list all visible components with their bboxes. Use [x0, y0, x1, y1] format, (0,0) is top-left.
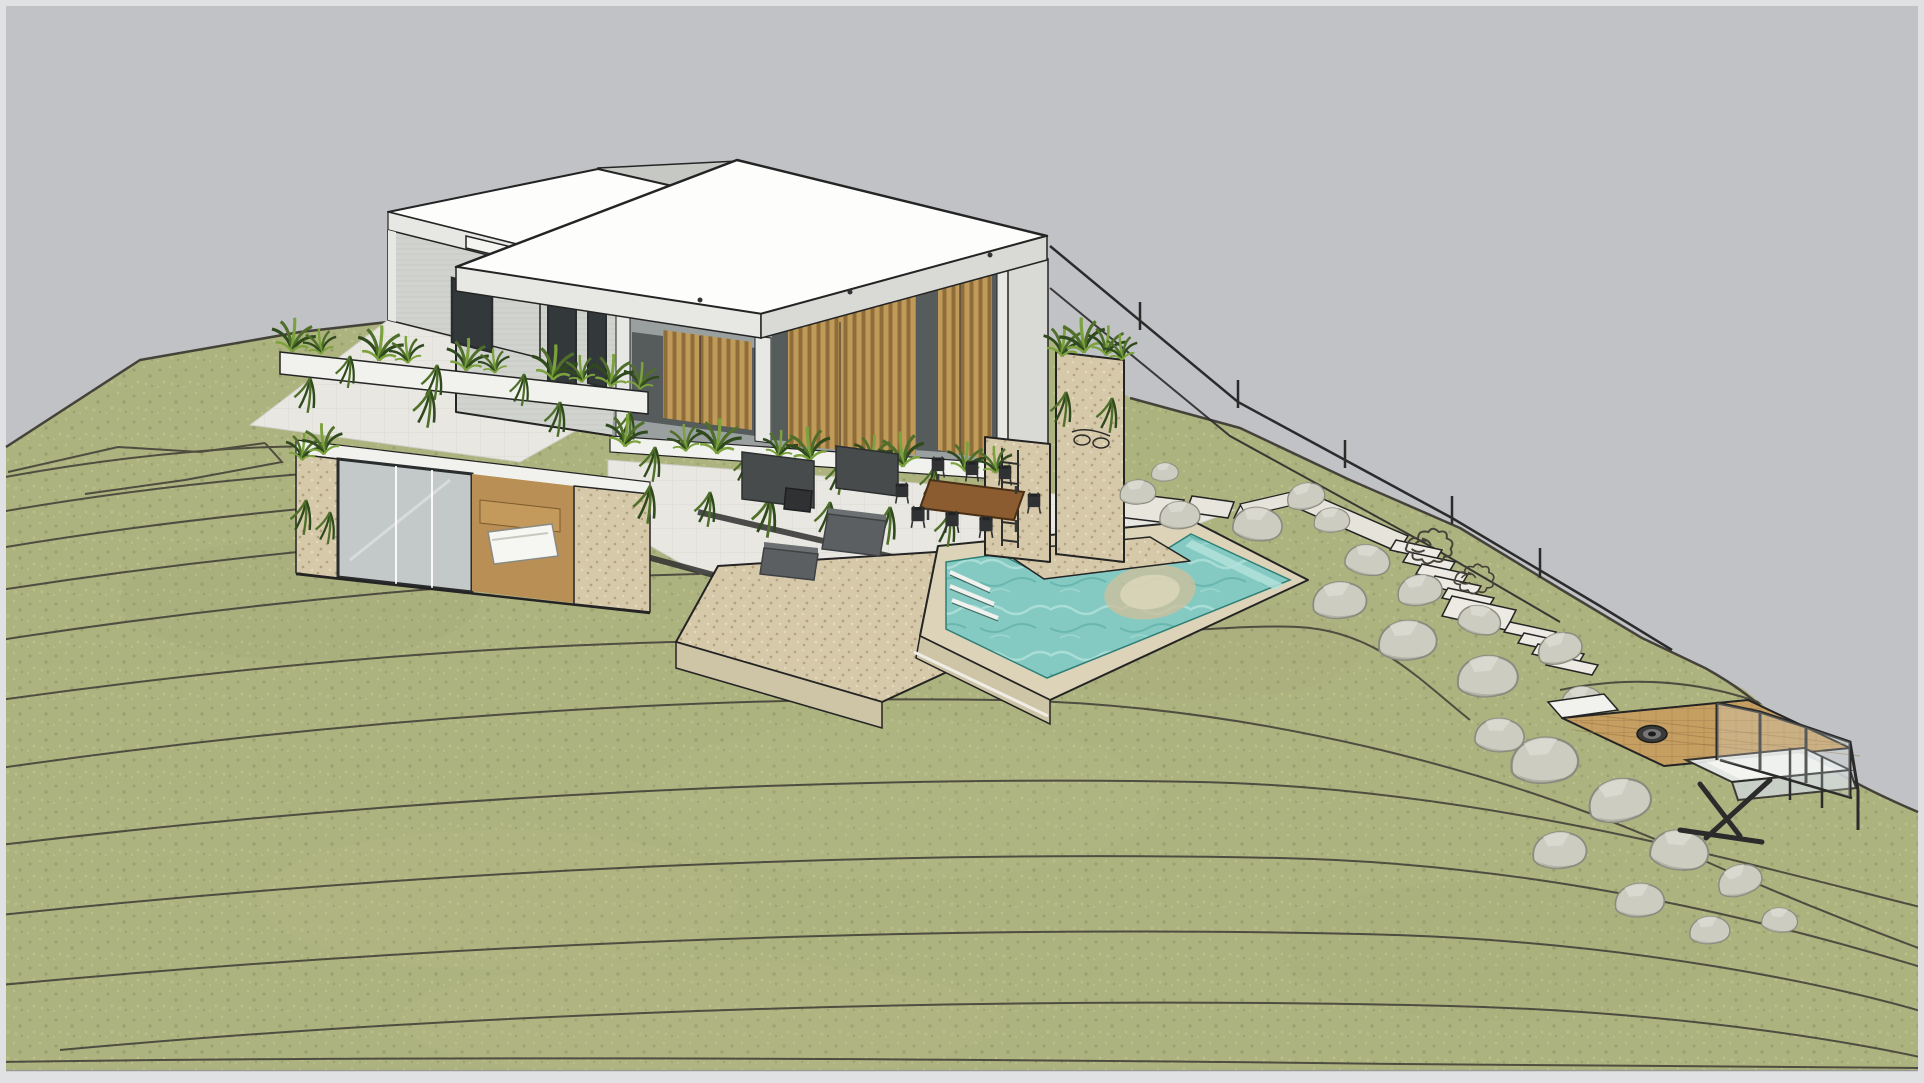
lounge-sofa — [760, 548, 818, 580]
render-viewport[interactable] — [0, 0, 1924, 1083]
roof-drain — [848, 290, 853, 295]
roof-drain — [988, 253, 993, 258]
wood-slat-screen — [663, 330, 752, 430]
site-render-canvas[interactable] — [0, 0, 1924, 1083]
fire-pit — [1637, 726, 1667, 743]
wing-corner-pilaster — [388, 230, 396, 322]
stone-pier — [574, 486, 650, 612]
lounge-armchair — [784, 488, 812, 512]
lounge-sofa — [822, 514, 886, 556]
roof-drain — [698, 298, 703, 303]
wood-slat-screen — [938, 272, 992, 460]
bedroom-interior — [472, 474, 574, 603]
east-facade — [1008, 259, 1048, 456]
bedroom-window — [338, 459, 472, 592]
veranda-column — [755, 336, 771, 443]
stone-pillar-art — [1056, 352, 1124, 562]
storage-box — [836, 446, 898, 496]
bed — [488, 524, 558, 564]
